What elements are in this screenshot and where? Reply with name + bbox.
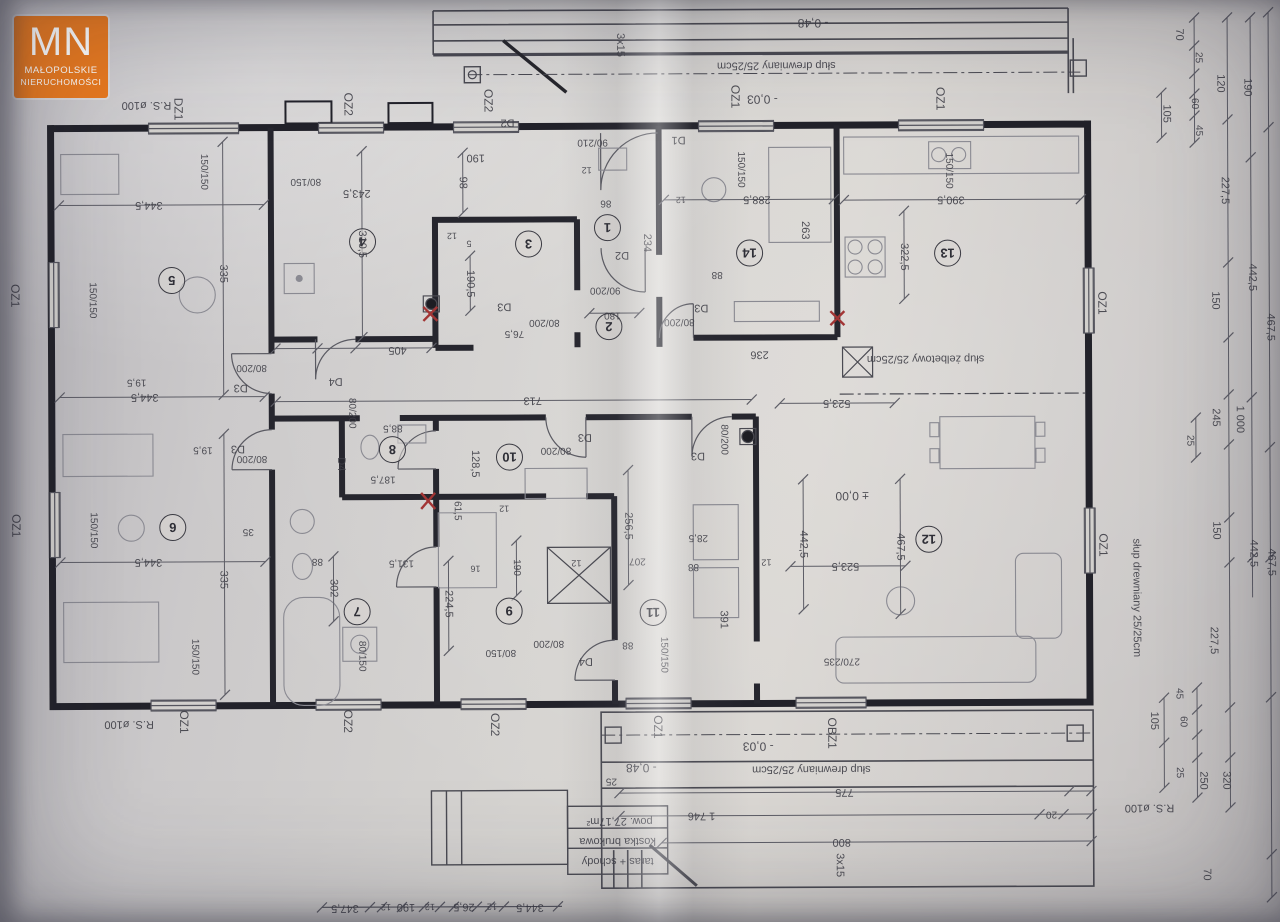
- photographed-floor-plan: 1234567891011121314 R.S. ø100DZ1OZ2OZ2OZ…: [0, 0, 1280, 922]
- logo-initials: MN: [14, 20, 108, 64]
- terrace-bottom: [601, 710, 1094, 888]
- inner-walls: [271, 125, 840, 705]
- logo-line2: NIERUCHOMOŚCI: [14, 77, 108, 87]
- terrace-left: [321, 790, 668, 908]
- outer-walls: [50, 98, 1090, 710]
- floor-plan-drawing: [0, 0, 1280, 922]
- logo-line1: MAŁOPOLSKIE: [14, 65, 108, 76]
- agency-logo: MN MAŁOPOLSKIE NIERUCHOMOŚCI: [14, 16, 108, 98]
- terrace-top: [433, 8, 1086, 96]
- floor-plan-sheet: 1234567891011121314 R.S. ø100DZ1OZ2OZ2OZ…: [0, 0, 1280, 922]
- window-frames: [49, 120, 1096, 711]
- windows: [48, 119, 1097, 712]
